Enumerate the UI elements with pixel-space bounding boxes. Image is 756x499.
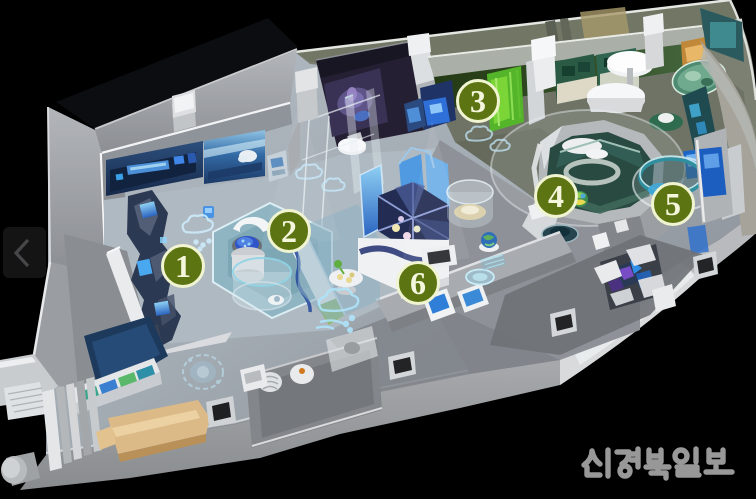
svg-text:4: 4 (548, 178, 564, 214)
svg-text:2: 2 (281, 213, 297, 249)
svg-text:1: 1 (175, 248, 191, 284)
svg-text:6: 6 (410, 265, 426, 301)
svg-text:5: 5 (665, 186, 681, 222)
svg-text:3: 3 (470, 83, 486, 119)
